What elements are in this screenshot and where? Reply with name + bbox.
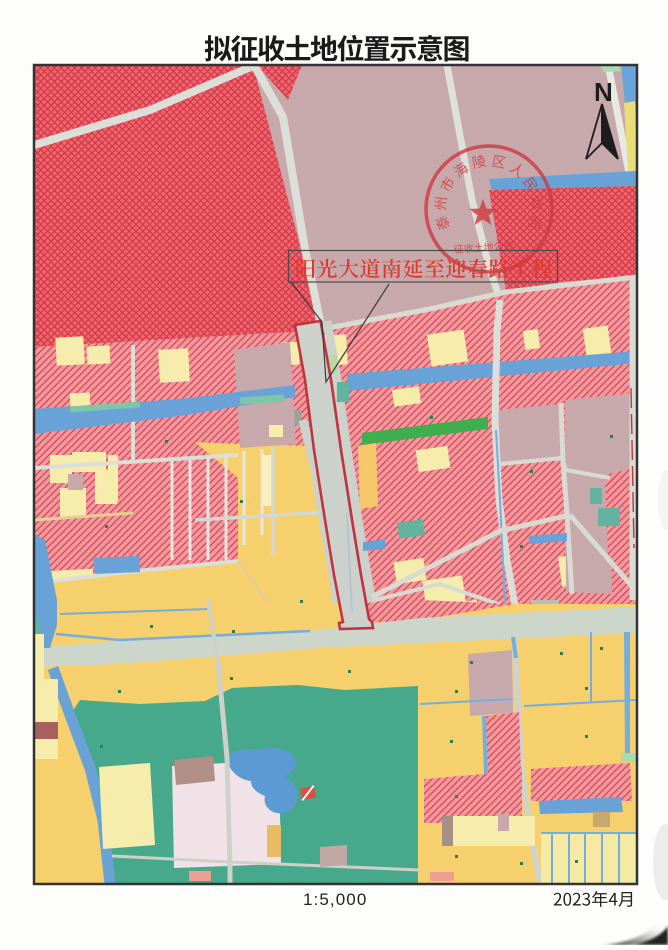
svg-text:N: N [594,77,613,107]
svg-text:1:5,000: 1:5,000 [303,890,367,909]
